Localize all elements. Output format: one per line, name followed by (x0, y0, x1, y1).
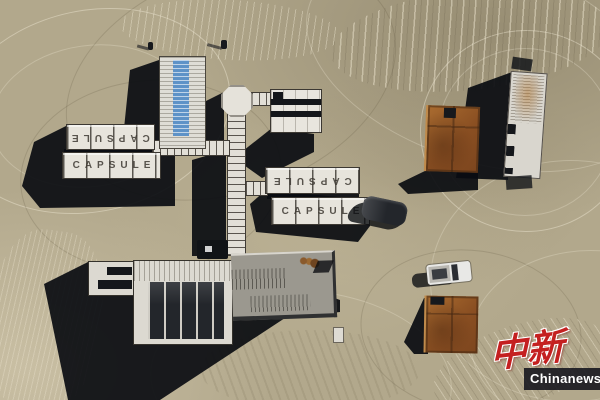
aerial-photo-mars-base: CAPSULE CAPSULE CAPSULE CAPSULE (0, 0, 600, 400)
watermark-site-text: Chinanews (530, 371, 600, 386)
pickup-bed-interior (432, 268, 448, 280)
roof-hatch-band (231, 268, 287, 290)
pickup-windshield (451, 264, 459, 281)
corridor-top-branch (251, 92, 272, 106)
building-end-equipment (506, 175, 533, 190)
capsule-row-left-bottom: CAPSULE (62, 152, 161, 179)
greenhouse-building (159, 56, 206, 149)
capsule-label: CAPSULE (67, 132, 155, 143)
watermark-site-bar: Chinanews (524, 368, 600, 390)
watermark-logo: 中新 (490, 327, 564, 373)
rust-square (424, 296, 479, 354)
rust-square-notch (430, 297, 444, 305)
annex-building (88, 261, 134, 296)
capsule-row-left-top: CAPSULE (66, 124, 155, 150)
concrete-extension (231, 250, 337, 321)
building-end-equipment (511, 57, 532, 72)
pickup-bed (428, 265, 451, 283)
greenhouse-blue-stripe (173, 60, 189, 136)
ribbed-roof-rusty (510, 74, 544, 124)
panel-strip (271, 111, 321, 117)
small-white-box (333, 327, 344, 343)
skylight-glazing (148, 282, 224, 339)
panel-cell (273, 92, 283, 104)
corridor-vertical (227, 106, 246, 256)
figure (221, 40, 227, 49)
corridor-node-octagon (221, 85, 253, 117)
roof-hatch-band (250, 294, 311, 312)
roof-rib-band (134, 261, 232, 281)
rust-platform-notch (444, 108, 456, 118)
equipment-box (197, 240, 228, 259)
capsule-label: CAPSULE (269, 175, 357, 186)
side-dark-patches (505, 124, 516, 174)
equipment-vent (205, 246, 212, 252)
main-hall-building (133, 260, 233, 345)
white-container-building (503, 71, 547, 179)
panel-building (270, 89, 322, 133)
annex-slot (98, 280, 132, 289)
capsule-label: CAPSULE (68, 160, 156, 171)
annex-slot (107, 267, 132, 275)
capsule-row-right-top: CAPSULE (265, 167, 360, 194)
figure (148, 42, 153, 50)
rust-platform (424, 105, 480, 173)
